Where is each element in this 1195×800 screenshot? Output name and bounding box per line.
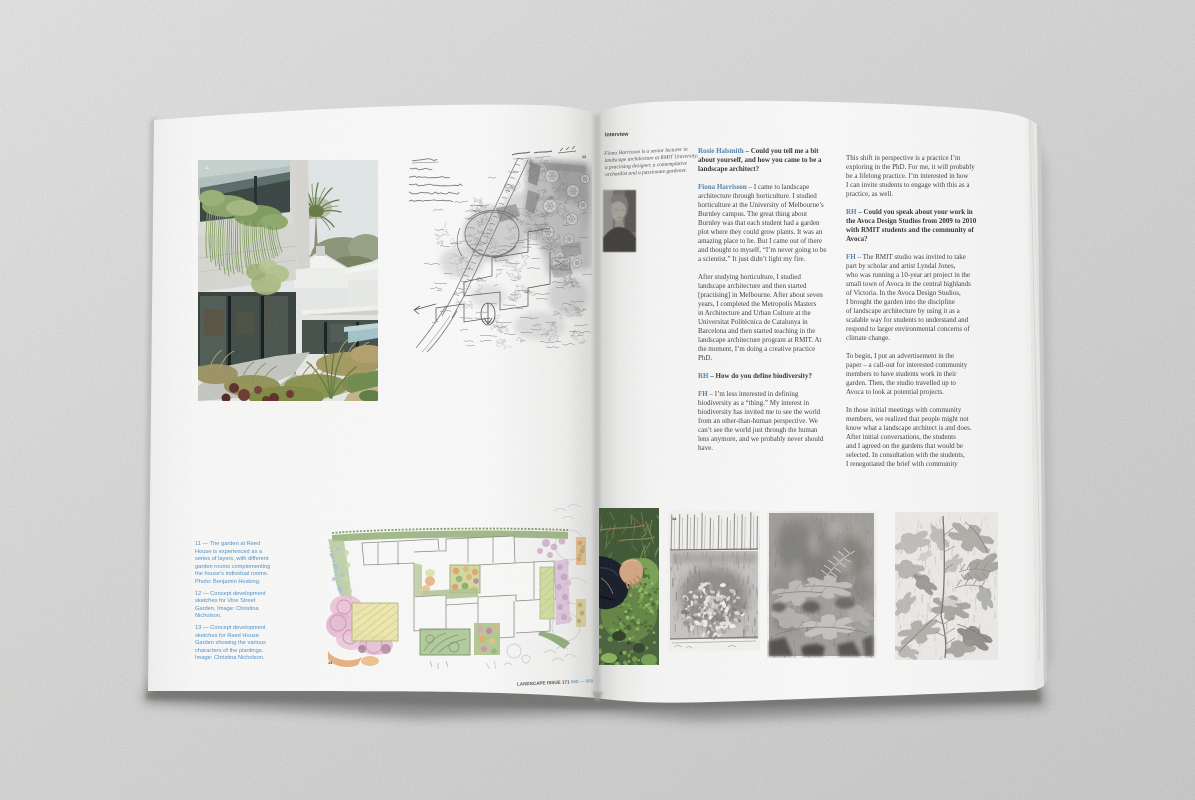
svg-text:13: 13 xyxy=(328,661,332,665)
svg-text:11: 11 xyxy=(205,166,209,170)
svg-text:12: 12 xyxy=(582,155,586,159)
